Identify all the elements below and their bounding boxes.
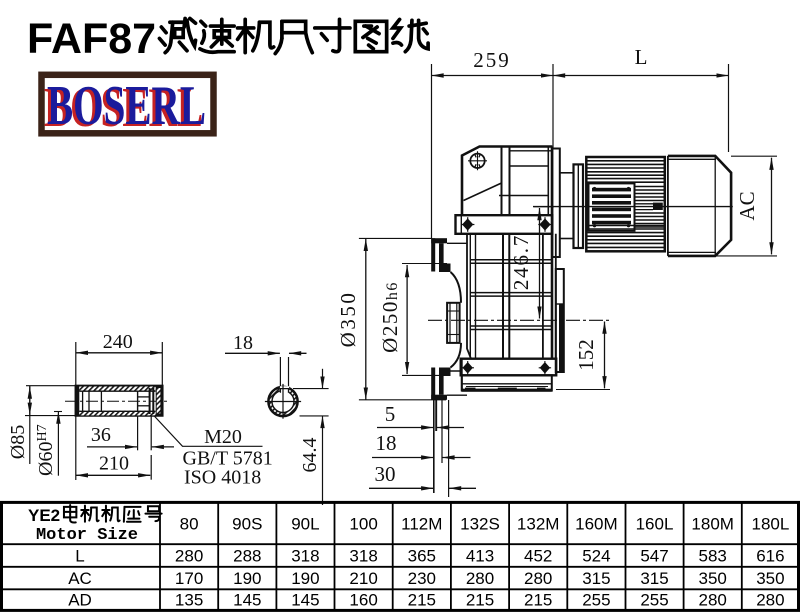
svg-text:90S: 90S — [232, 515, 262, 534]
svg-text:215: 215 — [524, 591, 552, 610]
svg-text:288: 288 — [233, 547, 261, 566]
svg-text:18: 18 — [376, 431, 397, 455]
svg-text:524: 524 — [582, 547, 610, 566]
svg-text:L: L — [635, 45, 648, 69]
svg-text:ISO 4018: ISO 4018 — [184, 467, 261, 489]
svg-text:18: 18 — [233, 332, 253, 354]
svg-text:280: 280 — [466, 569, 494, 588]
svg-text:180M: 180M — [691, 515, 734, 534]
svg-text:350: 350 — [699, 569, 727, 588]
svg-text:255: 255 — [582, 591, 610, 610]
svg-text:259: 259 — [473, 48, 511, 72]
svg-text:132S: 132S — [460, 515, 500, 534]
svg-text:255: 255 — [640, 591, 668, 610]
svg-text:90L: 90L — [291, 515, 319, 534]
svg-text:112M: 112M — [401, 515, 442, 534]
svg-text:180L: 180L — [751, 515, 789, 534]
svg-text:145: 145 — [291, 591, 319, 610]
svg-text:315: 315 — [640, 569, 668, 588]
svg-text:413: 413 — [466, 547, 494, 566]
svg-text:616: 616 — [756, 547, 784, 566]
svg-text:YE2: YE2 — [28, 506, 60, 525]
svg-text:210: 210 — [349, 569, 377, 588]
svg-text:Motor Size: Motor Size — [36, 526, 138, 545]
svg-text:FAF87: FAF87 — [27, 15, 156, 63]
svg-text:365: 365 — [408, 547, 436, 566]
svg-text:80: 80 — [180, 515, 199, 534]
svg-text:152: 152 — [574, 339, 598, 371]
svg-text:135: 135 — [175, 591, 203, 610]
svg-text:AC: AC — [68, 569, 92, 588]
svg-text:315: 315 — [582, 569, 610, 588]
svg-text:AC: AC — [735, 191, 759, 220]
svg-text:160L: 160L — [636, 515, 674, 534]
svg-text:215: 215 — [466, 591, 494, 610]
svg-text:5: 5 — [385, 402, 396, 426]
svg-text:145: 145 — [233, 591, 261, 610]
svg-text:547: 547 — [640, 547, 668, 566]
svg-text:190: 190 — [233, 569, 261, 588]
svg-text:132M: 132M — [517, 515, 560, 534]
svg-text:452: 452 — [524, 547, 552, 566]
svg-text:190: 190 — [291, 569, 319, 588]
svg-text:100: 100 — [349, 515, 377, 534]
svg-text:160: 160 — [349, 591, 377, 610]
svg-text:318: 318 — [349, 547, 377, 566]
svg-text:Ø85: Ø85 — [7, 425, 29, 459]
svg-text:170: 170 — [175, 569, 203, 588]
svg-text:280: 280 — [756, 591, 784, 610]
svg-text:280: 280 — [699, 591, 727, 610]
svg-text:280: 280 — [175, 547, 203, 566]
svg-text:64.4: 64.4 — [299, 438, 321, 473]
svg-text:210: 210 — [99, 453, 129, 475]
svg-text:L: L — [75, 547, 84, 566]
svg-text:215: 215 — [408, 591, 436, 610]
svg-text:Ø350: Ø350 — [336, 291, 360, 348]
svg-text:M20: M20 — [204, 426, 242, 448]
svg-text:280: 280 — [524, 569, 552, 588]
svg-text:583: 583 — [699, 547, 727, 566]
svg-text:240: 240 — [103, 331, 133, 353]
svg-text:350: 350 — [756, 569, 784, 588]
svg-text:AD: AD — [68, 591, 92, 610]
svg-text:230: 230 — [408, 569, 436, 588]
svg-text:BOSERL: BOSERL — [47, 75, 206, 137]
svg-text:30: 30 — [375, 462, 396, 486]
svg-text:318: 318 — [291, 547, 319, 566]
svg-text:246.7: 246.7 — [509, 234, 533, 290]
svg-text:160M: 160M — [575, 515, 618, 534]
svg-text:36: 36 — [91, 424, 111, 446]
